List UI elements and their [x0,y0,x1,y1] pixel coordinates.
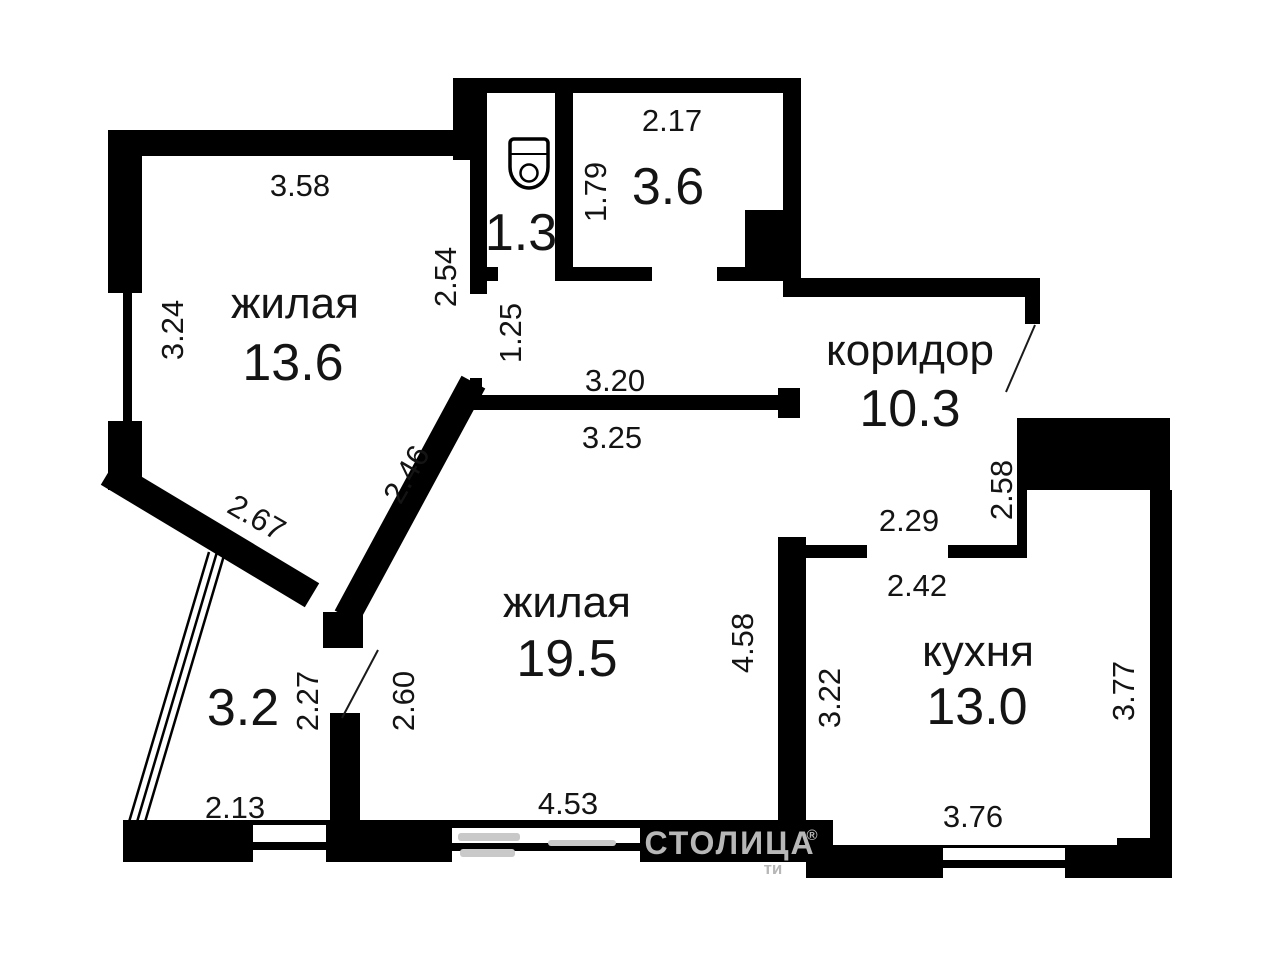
wall-segment [1017,418,1170,490]
wall-segment [1025,297,1040,324]
wall-segment [108,130,487,156]
room-kitchen-area: 13.0 [926,678,1027,736]
room-living2-label: жилая [503,578,631,627]
dim-balcony-bottom: 2.13 [205,790,265,825]
dim-balcony-inner: 2.27 [290,671,325,731]
dim-hall-right: 2.58 [984,460,1019,520]
room-kitchen-label: кухня [922,627,1034,676]
dim-pantry-left: 1.79 [578,162,613,222]
wall-segment [745,210,783,281]
dim-room2-top: 3.25 [582,420,642,455]
dim-kitchen-bottom: 3.76 [943,799,1003,834]
wall-segment [948,545,1027,558]
wall-segment [717,267,745,281]
dim-hall-top: 3.20 [585,363,645,398]
dim-hall-bottom: 2.29 [879,503,939,538]
wall-segment [470,267,498,281]
balcony-door-swing [342,650,378,718]
floor-plan: жилая 13.6 1.3 3.6 коридор 10.3 жилая 19… [0,0,1280,961]
wall-segment [453,78,801,93]
wall-segment [108,130,142,293]
watermark-fragment-blob [548,840,616,846]
dim-passage: 1.25 [493,303,528,363]
wall-segment [330,713,360,823]
dim-kitchen-top: 2.42 [887,568,947,603]
dim-kitchen-left: 3.22 [812,668,847,728]
dim-room1-right: 2.54 [428,247,463,307]
room-hall-area: 10.3 [859,380,960,438]
wall-segment [1150,490,1172,878]
room-balcony-area: 3.2 [207,679,279,737]
wall-segment [778,388,800,418]
window-balcony-bottom [253,825,326,862]
window-kitchen-bottom [943,848,1065,878]
room-living1-label: жилая [231,279,359,328]
wall-segment [1117,838,1153,846]
window-left [108,293,142,421]
wall-segment [555,267,652,281]
room-living2-area: 19.5 [516,630,617,688]
wall-segment [555,93,573,281]
watermark-fragment-text: ти [764,859,783,878]
room-living1-area: 13.6 [242,334,343,392]
dim-pantry-top: 2.17 [642,103,702,138]
watermark-brand: СТОЛИЦА [644,825,815,861]
dim-room1-top: 3.58 [270,168,330,203]
wall-segment [805,545,867,558]
wall-segment [470,93,487,294]
dim-balcony-door: 2.60 [386,671,421,731]
watermark-registered-mark: ® [806,827,817,844]
dim-kitchen-right: 3.77 [1106,661,1141,721]
watermark-fragment-blob [460,849,515,857]
wall-segment [778,537,806,822]
dim-room2-bottom: 4.53 [538,786,598,821]
entrance-door-swing [1006,325,1035,392]
room-hall-label: коридор [826,326,994,375]
toilet-icon [510,139,548,188]
wall-segment [783,278,1040,297]
dim-room1-left: 3.24 [155,300,190,360]
wall-segment [783,93,801,297]
dim-room2-right: 4.58 [725,613,760,673]
room-pantry-area: 3.6 [632,158,704,216]
room-wc-area: 1.3 [485,204,557,262]
watermark-fragment-blob [458,833,520,841]
